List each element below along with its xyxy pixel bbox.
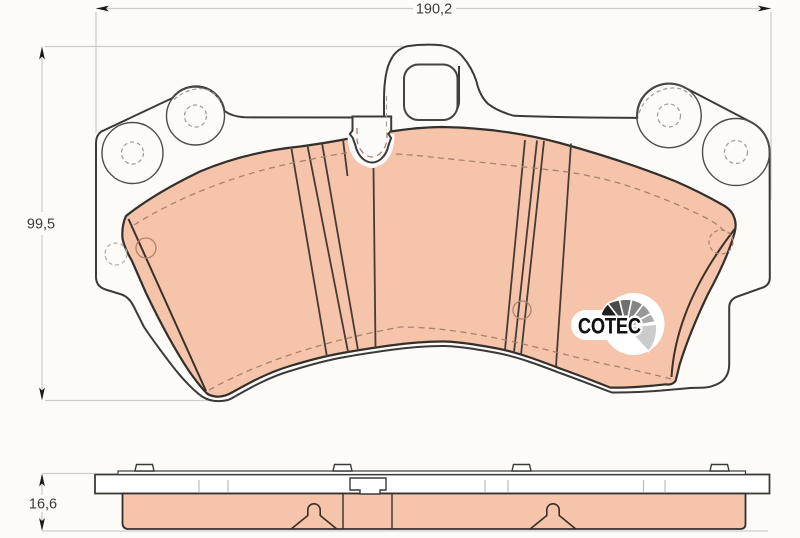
svg-text:190,2: 190,2: [416, 2, 452, 18]
svg-text:99,5: 99,5: [27, 217, 55, 233]
svg-text:COTEC: COTEC: [578, 314, 641, 339]
svg-text:16,6: 16,6: [29, 497, 57, 513]
